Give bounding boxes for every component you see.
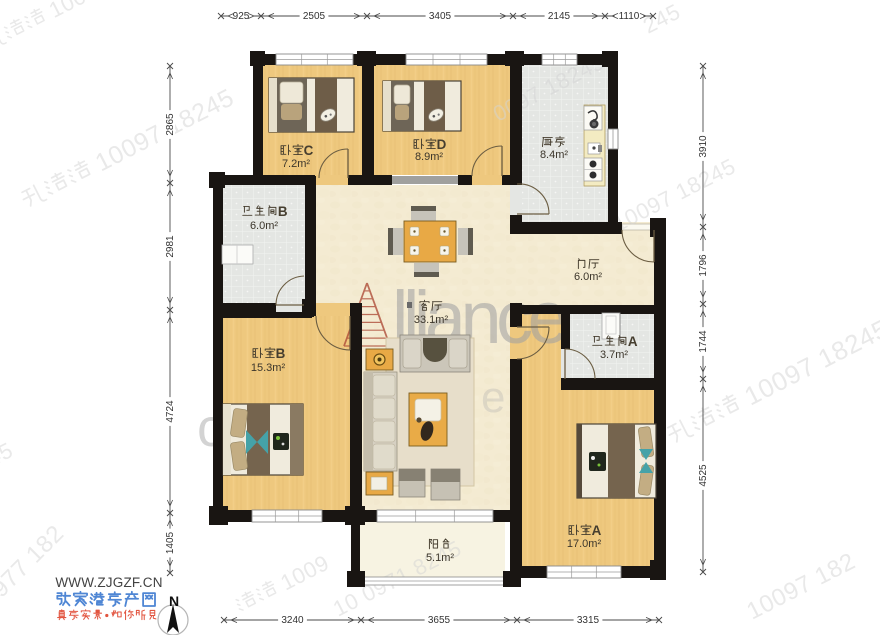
svg-text:17.0m²: 17.0m² — [567, 538, 602, 550]
svg-text:4724: 4724 — [165, 400, 176, 423]
svg-text:3405: 3405 — [429, 11, 452, 22]
svg-text:B: B — [276, 346, 286, 361]
svg-text:8.4m²: 8.4m² — [540, 149, 568, 161]
svg-text:3.7m²: 3.7m² — [600, 349, 628, 361]
svg-text:2865: 2865 — [165, 113, 176, 136]
svg-text:2981: 2981 — [165, 235, 176, 258]
svg-text:B: B — [278, 204, 288, 219]
svg-text:WWW.ZJGZF.CN: WWW.ZJGZF.CN — [55, 575, 162, 590]
svg-text:7.2m²: 7.2m² — [282, 158, 310, 170]
svg-text:C: C — [304, 143, 314, 158]
svg-text:1796: 1796 — [698, 254, 709, 277]
svg-text:N: N — [169, 593, 179, 609]
svg-text:D: D — [437, 137, 447, 152]
svg-text:2505: 2505 — [303, 11, 326, 22]
svg-text:A: A — [628, 334, 638, 349]
svg-text:3315: 3315 — [577, 615, 600, 626]
svg-text:33.1m²: 33.1m² — [414, 314, 449, 326]
svg-text:5.1m²: 5.1m² — [426, 552, 454, 564]
svg-text:15.3m²: 15.3m² — [251, 362, 286, 374]
svg-text:2145: 2145 — [548, 11, 571, 22]
svg-text:1744: 1744 — [698, 330, 709, 353]
svg-text:6.0m²: 6.0m² — [250, 220, 278, 232]
svg-text:3910: 3910 — [698, 135, 709, 158]
svg-text:1110: 1110 — [619, 11, 640, 22]
svg-text:925: 925 — [233, 11, 250, 22]
svg-text:e: e — [481, 373, 505, 422]
svg-text:6.0m²: 6.0m² — [574, 271, 602, 283]
svg-text:1405: 1405 — [165, 531, 176, 554]
svg-text:A: A — [592, 523, 602, 538]
svg-text:3655: 3655 — [428, 615, 451, 626]
svg-text:3240: 3240 — [281, 615, 304, 626]
svg-text:8.9m²: 8.9m² — [415, 151, 443, 163]
svg-text:4525: 4525 — [698, 464, 709, 487]
